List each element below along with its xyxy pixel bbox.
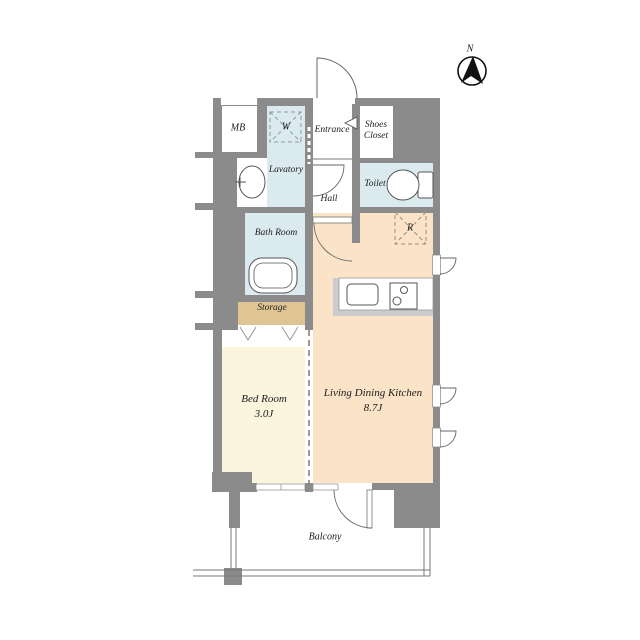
entrance-label: Entrance — [315, 125, 350, 135]
wall-bottom-seg — [252, 483, 257, 492]
wall-storage-left — [222, 302, 238, 330]
room-lavatory — [267, 104, 305, 207]
north-compass-icon — [458, 56, 486, 85]
bedroom-name: Bed Room — [241, 392, 287, 407]
pillar-bottom-right — [394, 490, 440, 528]
wall-lavatory-hall — [305, 104, 313, 213]
wall-ldk-door-jamb — [352, 213, 360, 243]
wall-toilet-top — [352, 158, 440, 163]
hall-label: Hall — [321, 194, 338, 204]
pillar-bottom-left — [212, 472, 252, 492]
wall-hall-toilet — [352, 163, 360, 207]
room-washbasin-nook — [237, 158, 267, 207]
wall-stub-2 — [195, 291, 213, 298]
wall-mb-right — [257, 104, 267, 154]
wall-stub-3 — [195, 323, 213, 330]
balcony-corner-post — [224, 568, 242, 585]
lavatory-label: Lavatory — [269, 165, 303, 175]
storage-label: Storage — [257, 303, 287, 313]
bedroom-window-icon — [256, 484, 305, 490]
washing-machine-label: W — [282, 122, 290, 133]
entrance-step-edge — [313, 158, 352, 160]
wall-bottom-post — [305, 483, 313, 492]
wall-stub-1 — [195, 203, 213, 210]
wall-storage-top — [213, 295, 305, 302]
wall-ldk-top — [352, 207, 440, 213]
partition-strip — [305, 330, 313, 483]
wall-right — [433, 98, 440, 490]
balcony-side-wall — [229, 492, 240, 528]
wall-block-top-right — [393, 104, 433, 160]
bathroom-label: Bath Room — [255, 228, 297, 238]
compass-north-label: N — [467, 44, 474, 55]
entrance-door-icon — [317, 58, 357, 98]
shoes-closet-label-line1: Shoes — [364, 120, 388, 131]
shoes-closet-label: Shoes Closet — [364, 120, 388, 142]
room-bathroom — [245, 213, 305, 295]
refrigerator-label: R — [407, 223, 413, 234]
mb-label: MB — [231, 123, 245, 134]
ldk-label: Living Dining Kitchen 8.7J — [324, 386, 422, 416]
toilet-label: Toilet — [364, 179, 385, 189]
ldk-size: 8.7J — [324, 401, 422, 416]
ldk-name: Living Dining Kitchen — [324, 386, 422, 401]
shoes-closet-label-line2: Closet — [364, 131, 388, 142]
room-ldk — [313, 213, 433, 483]
balcony-label: Balcony — [309, 532, 342, 543]
bedroom-size: 3.0J — [241, 407, 287, 422]
wall-powder-left-block — [213, 158, 237, 207]
ldk-window-icon — [313, 484, 338, 490]
wall-bath-ldk — [305, 213, 313, 330]
wall-entrance-shoescloset — [352, 104, 360, 158]
wall-bath-left-block — [222, 213, 245, 295]
bedroom-label: Bed Room 3.0J — [241, 392, 287, 422]
room-hall — [313, 160, 352, 213]
wall-ldk-bottom — [372, 483, 440, 490]
balcony-door-icon — [334, 490, 372, 528]
floor-plan: MB W Lavatory Entrance Shoes Closet Hall… — [0, 0, 640, 640]
mb-top-opening — [220, 98, 258, 105]
